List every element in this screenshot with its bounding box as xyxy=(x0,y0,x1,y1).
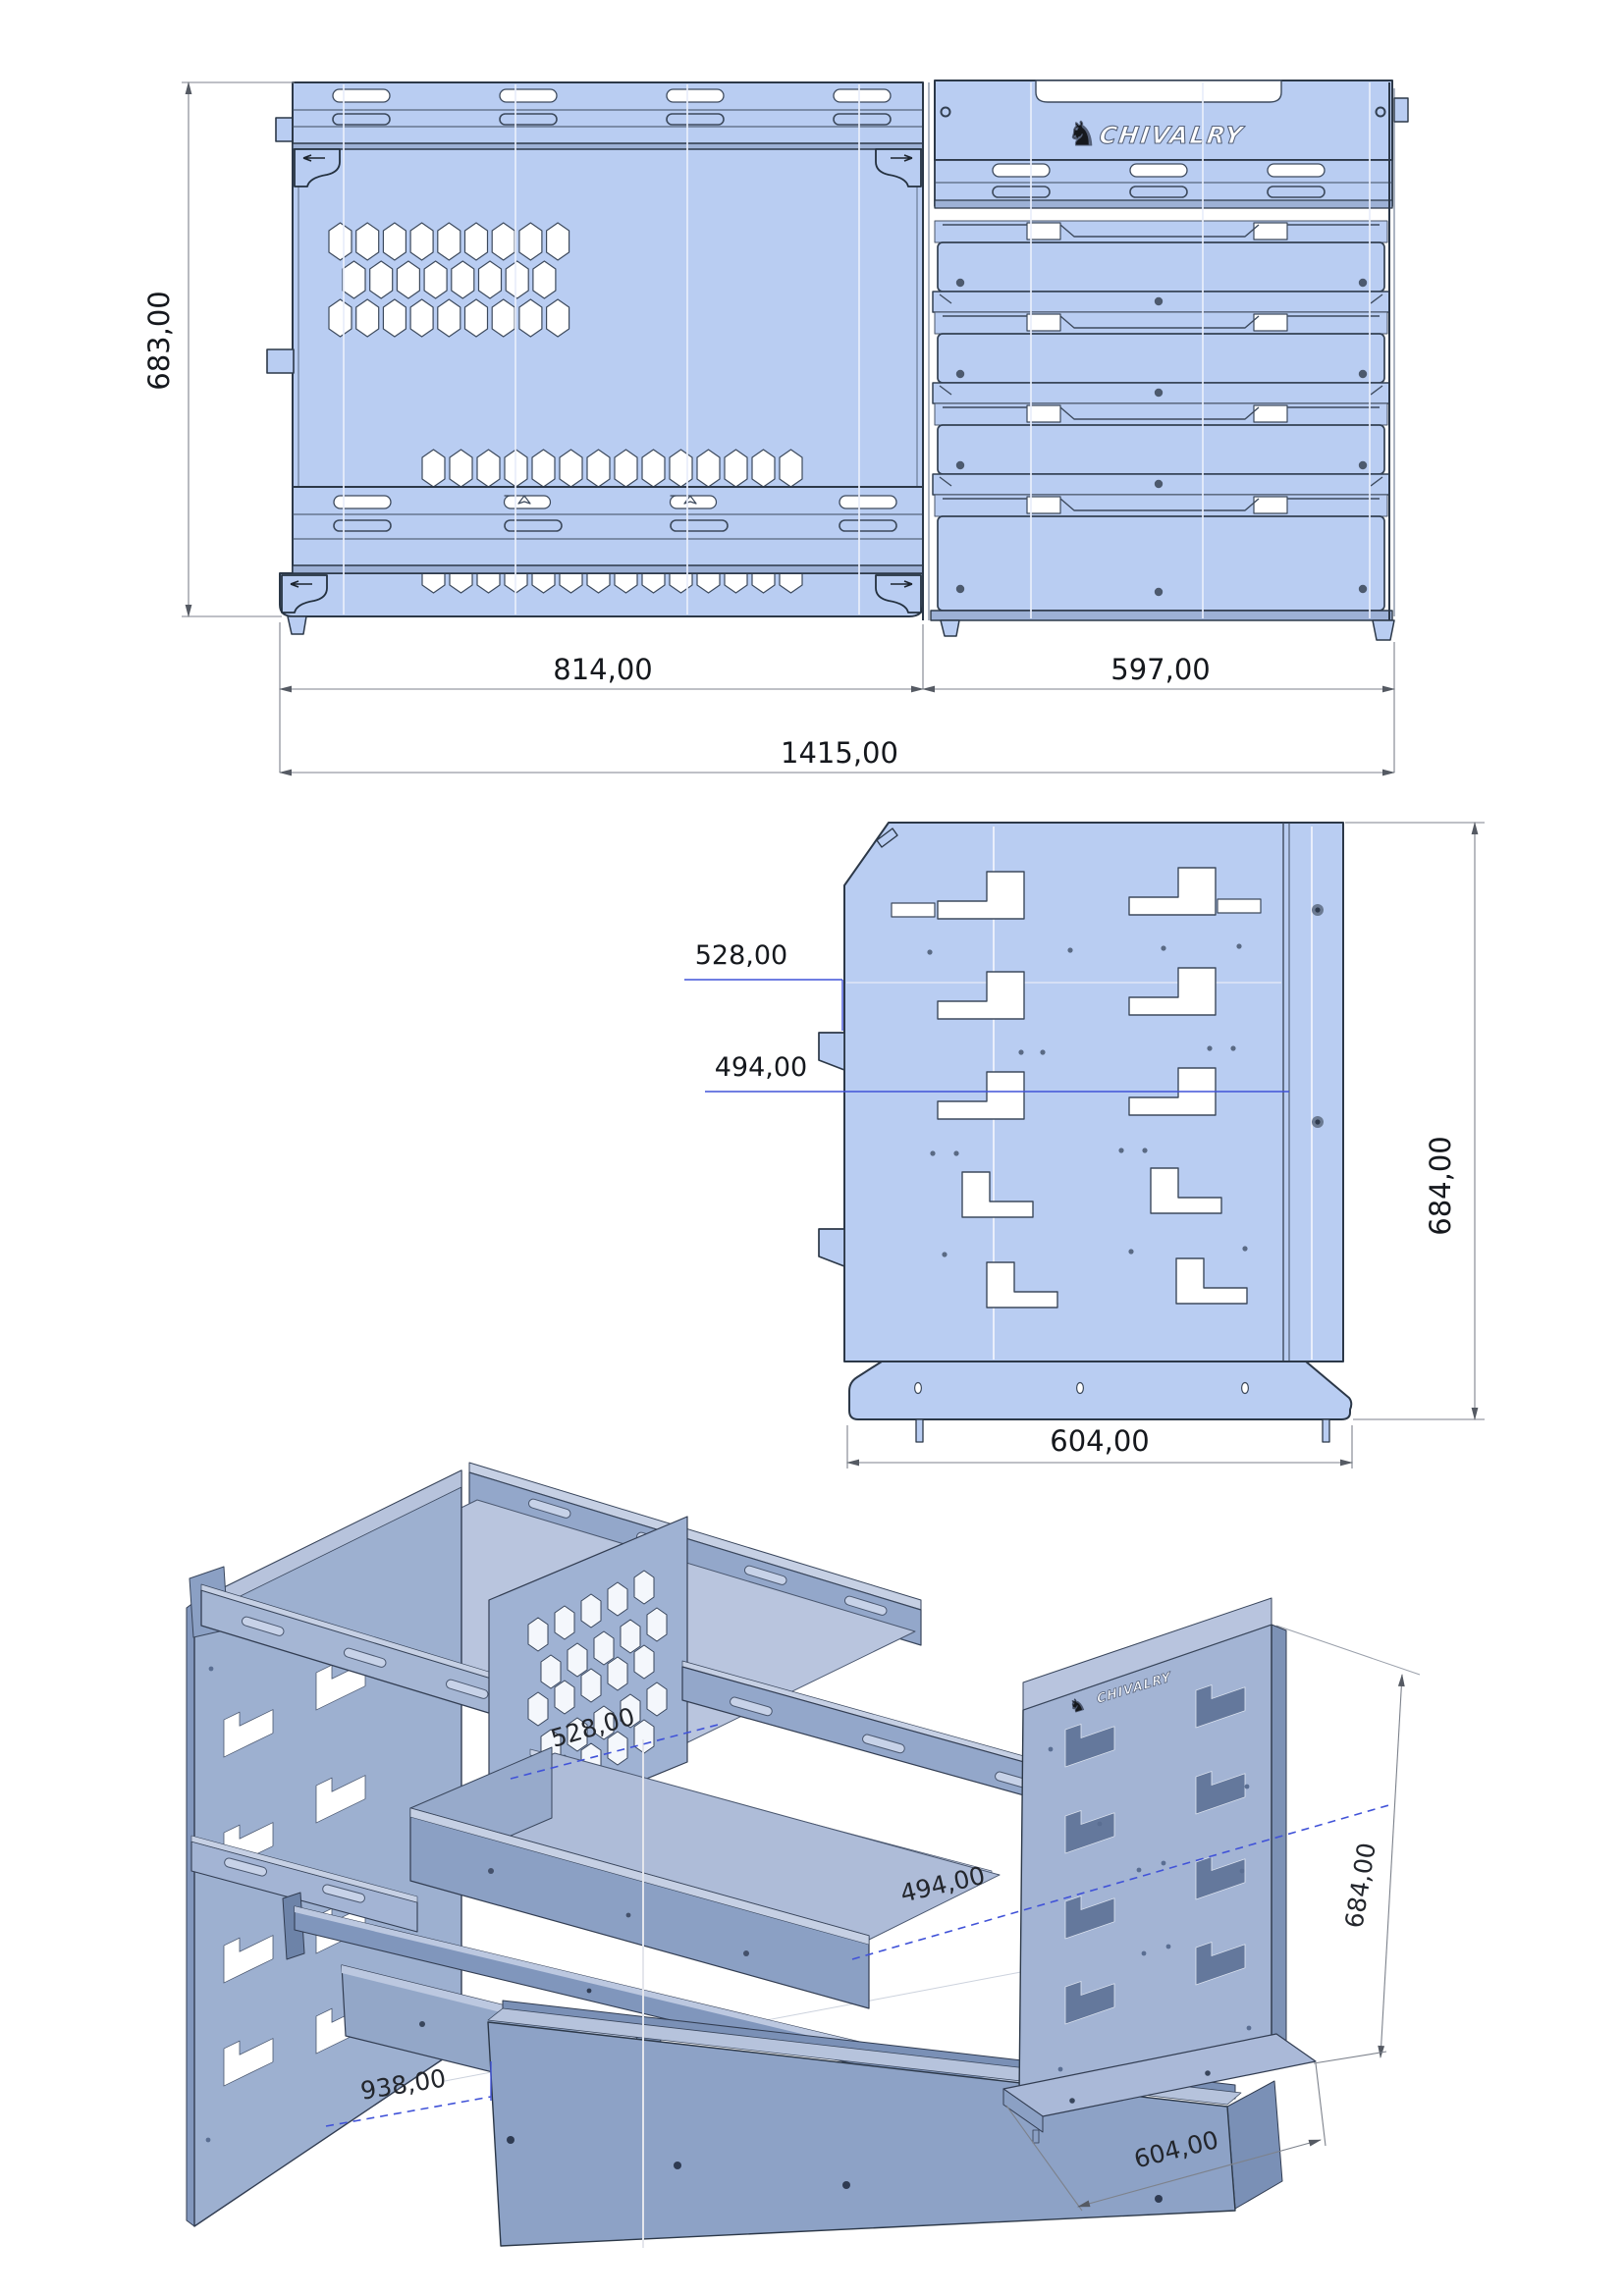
cad-drawing-page: ♞ CHIVALRY xyxy=(0,0,1624,2296)
dim-front-height: 683,00 xyxy=(142,291,176,390)
dim-iso-height: 684,00 xyxy=(1339,1841,1380,1930)
dim-side-lower-depth: 494,00 xyxy=(715,1052,807,1083)
drawer-row-bottom xyxy=(931,495,1392,620)
dim-side-base-depth: 604,00 xyxy=(1050,1424,1149,1458)
technical-drawing: ♞ CHIVALRY xyxy=(0,0,1624,2296)
front-top-rail xyxy=(293,82,923,149)
side-view: 528,00 494,00 684,00 604,00 xyxy=(684,823,1485,1468)
brand-logo-text: CHIVALRY xyxy=(1098,122,1246,149)
dim-front-left-width: 814,00 xyxy=(553,653,652,686)
drawer-row-3 xyxy=(933,403,1389,495)
front-right-module: ♞ CHIVALRY xyxy=(923,80,1408,640)
dim-side-upper-depth: 528,00 xyxy=(695,940,787,971)
front-view: ♞ CHIVALRY xyxy=(142,80,1408,773)
drawer-row-2 xyxy=(933,312,1389,403)
dim-front-total-width: 1415,00 xyxy=(781,736,898,770)
front-lower-rail xyxy=(293,487,923,573)
side-base-plate xyxy=(849,1362,1351,1419)
iso-view: ♞ CHIVALRY 528,00 494,00 938,00 684,00 6… xyxy=(187,1463,1420,2248)
drawer-row-1 xyxy=(933,221,1389,312)
dim-side-height: 684,00 xyxy=(1424,1136,1457,1235)
dim-front-right-width: 597,00 xyxy=(1110,653,1210,686)
knight-icon: ♞ xyxy=(1067,115,1097,154)
